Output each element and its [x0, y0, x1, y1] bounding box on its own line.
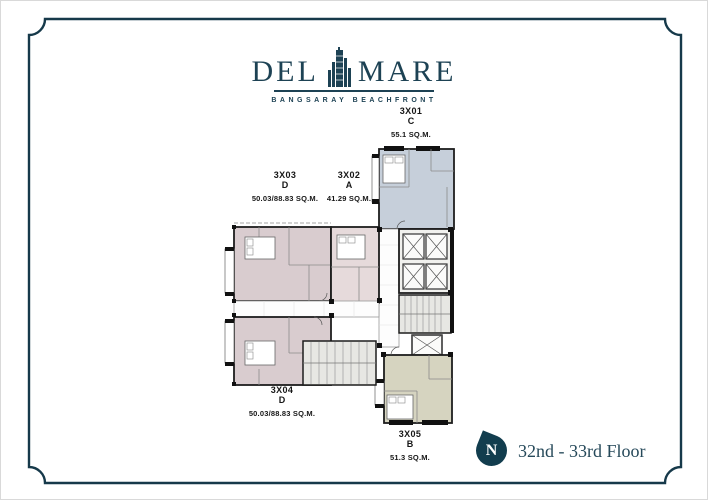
logo-wordmark: DEL MARE	[251, 47, 456, 87]
unit-type: B	[360, 439, 460, 449]
unit-3x02-area	[331, 227, 379, 303]
unit-id: 3X01	[361, 107, 461, 116]
unit-area: 50.03/88.83 SQ.M.	[232, 410, 332, 418]
logo-rule	[274, 90, 434, 92]
unit-label-3x05: 3X05 B 51.3 SQ.M.	[360, 430, 460, 462]
logo-tagline: BANGSARAY BEACHFRONT	[271, 97, 436, 104]
bed-icon	[337, 235, 365, 259]
unit-area: 41.29 SQ.M.	[301, 195, 397, 203]
unit-label-3x02: 3X02 A 41.29 SQ.M.	[301, 171, 397, 203]
balcony	[225, 249, 234, 293]
balcony	[225, 321, 234, 363]
unit-area: 55.1 SQ.M.	[361, 131, 461, 139]
corridor	[234, 301, 379, 317]
unit-area: 51.3 SQ.M.	[360, 454, 460, 462]
stairs-icon	[399, 295, 451, 333]
stairs-icon	[303, 341, 376, 385]
door-swing-icon	[391, 347, 399, 355]
bed-icon	[387, 395, 413, 419]
unit-id: 3X05	[360, 430, 460, 439]
logo-word-del: DEL	[251, 57, 318, 87]
bed-icon	[245, 341, 275, 365]
unit-id: 3X02	[301, 171, 397, 180]
building-icon	[327, 47, 353, 87]
corridor	[379, 229, 399, 347]
logo-word-mare: MARE	[358, 57, 457, 87]
logo: DEL MARE	[1, 47, 707, 104]
unit-label-3x01: 3X01 C 55.1 SQ.M.	[361, 107, 461, 139]
unit-type: C	[361, 116, 461, 126]
unit-label-3x04: 3X04 D 50.03/88.83 SQ.M.	[232, 386, 332, 418]
brochure-page: DEL MARE	[0, 0, 708, 500]
compass-letter: N	[486, 443, 498, 459]
unit-3x05-area	[375, 347, 452, 425]
unit-id: 3X04	[232, 386, 332, 395]
floor-label: 32nd - 33rd Floor	[518, 441, 688, 462]
unit-3x03-area	[225, 223, 331, 301]
core-area	[379, 229, 454, 355]
unit-type: D	[232, 395, 332, 405]
unit-type: A	[301, 180, 397, 190]
